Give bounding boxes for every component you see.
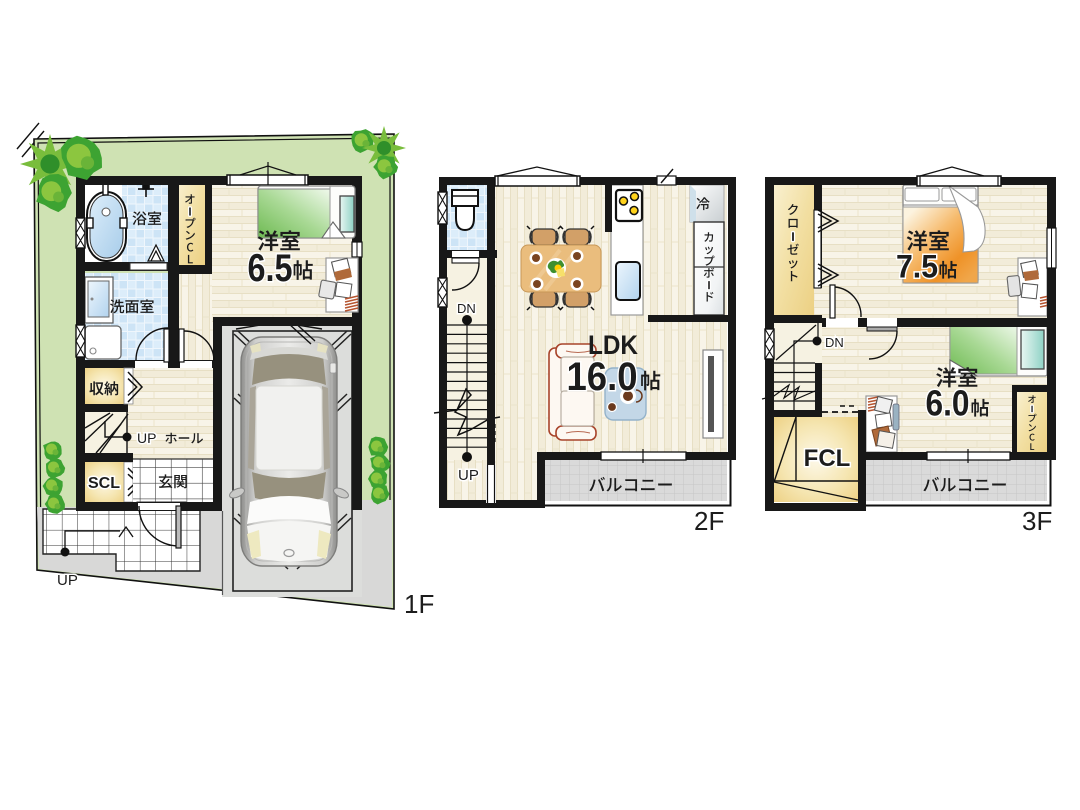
svg-text:6.0: 6.0 bbox=[926, 383, 970, 424]
svg-text:16.0: 16.0 bbox=[567, 355, 638, 399]
svg-text:2F: 2F bbox=[694, 506, 724, 536]
svg-text:SCL: SCL bbox=[88, 475, 120, 492]
svg-text:UP: UP bbox=[57, 572, 78, 589]
svg-text:UP: UP bbox=[137, 430, 156, 446]
svg-text:3F: 3F bbox=[1022, 506, 1052, 536]
svg-text:DN: DN bbox=[825, 335, 844, 350]
svg-text:7.5: 7.5 bbox=[896, 249, 938, 285]
svg-text:6.5: 6.5 bbox=[248, 247, 293, 290]
svg-text:DN: DN bbox=[457, 301, 476, 316]
svg-text:1F: 1F bbox=[404, 589, 434, 619]
svg-text:FCL: FCL bbox=[804, 445, 851, 472]
svg-text:UP: UP bbox=[458, 467, 479, 484]
